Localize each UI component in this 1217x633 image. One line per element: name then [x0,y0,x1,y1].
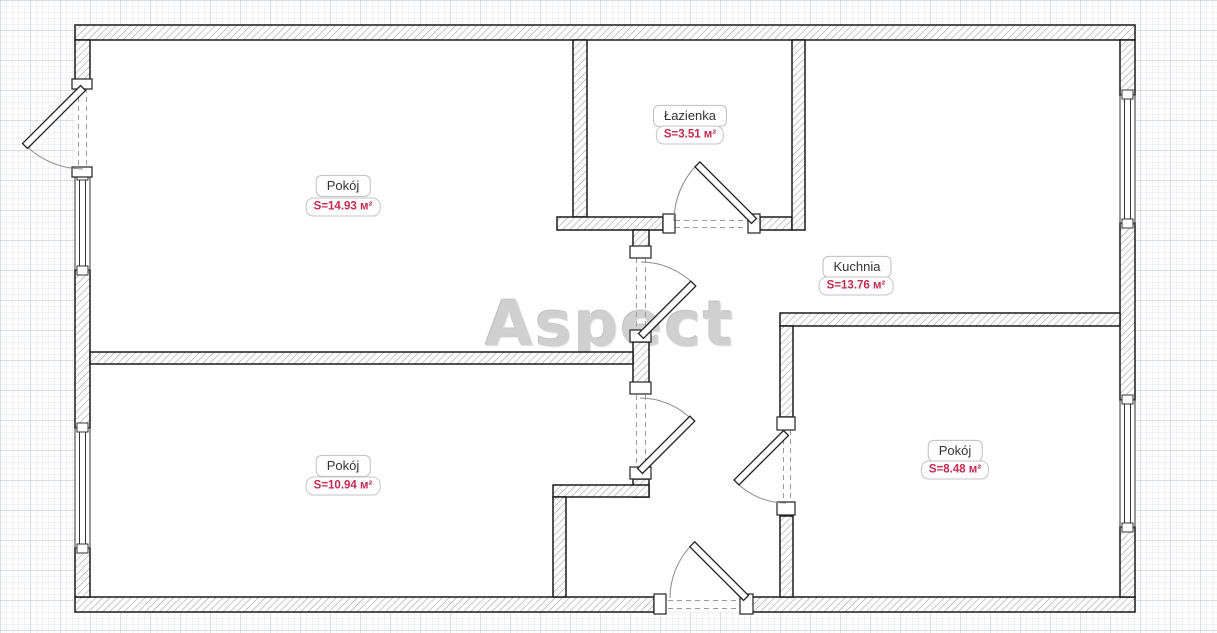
door-arc [670,544,692,598]
window [1120,395,1135,532]
wall-bathroom-right [792,40,805,230]
window [1120,90,1135,228]
wall-step-horizontal [553,485,649,497]
door-opening [784,430,791,503]
wall-step-vertical [553,497,566,597]
door-room-right [734,431,788,503]
door-bathroom [674,162,756,224]
door-opening [675,221,748,228]
wall-hall-upper [633,230,649,247]
room-area-pokoj-2: S=10.94 м² [306,477,381,496]
door-entrance-bottom [670,542,748,601]
door-opening [79,88,87,168]
wall-exterior-top [75,25,1135,40]
door-leaf [695,162,757,224]
door-leaf [639,281,696,338]
door-opening [637,258,646,330]
door-arc [674,164,697,221]
wall-room4-top [780,313,1120,326]
door-openings [79,88,791,609]
room-area-pokoj-3: S=8.48 м² [921,461,989,480]
wall-exterior-right-1 [1120,40,1135,95]
room-area-lazienka: S=3.51 м² [656,126,724,145]
door-hall-upper [639,262,696,338]
wall-exterior-bottom-right [752,597,1135,612]
wall-hall-middle [633,342,649,383]
door-leaf [690,542,749,601]
wall-exterior-right-2 [1120,223,1135,400]
door-jamb [630,246,651,258]
room-label-kuchnia: Kuchnia [823,256,892,278]
door-opening [637,395,646,468]
door-entry-left [23,86,86,169]
room-label-lazienka: Łazienka [653,105,727,127]
window [75,423,90,553]
wall-bathroom-bottom-right [760,217,792,230]
door-arc [737,483,787,504]
doors [23,86,789,601]
door-hall-lower [638,398,695,473]
wall-room4-left-upper [780,326,793,417]
door-leaf [23,86,86,149]
wall-exterior-right-3 [1120,527,1135,597]
wall-bathroom-bottom-left [557,217,663,230]
door-jamb [777,502,795,515]
window [75,171,90,275]
door-leaf [734,431,788,485]
wall-bathroom-left [573,40,587,217]
room-area-pokoj-1: S=14.93 м² [306,198,381,217]
room-label-pokoj-1: Pokój [316,175,371,197]
door-jambs [72,79,795,614]
wall-exterior-left-3 [75,548,90,597]
wall-room4-left-lower [780,516,793,597]
wall-exterior-bottom-left [75,597,654,612]
door-jamb [663,214,675,233]
door-arc [26,145,83,169]
door-opening [668,601,740,609]
room-label-pokoj-2: Pokój [316,455,371,477]
wall-room-divider [90,352,633,364]
floorplan-drawing [0,0,1217,633]
door-arc [640,398,692,419]
door-leaf [638,416,695,473]
room-label-pokoj-3: Pokój [928,440,983,462]
door-jamb [630,382,651,394]
door-jamb [654,594,666,614]
room-area-kuchnia: S=13.76 м² [819,277,894,296]
door-jamb [777,417,795,430]
floorplan-page: { "watermark": "Aspect", "rooms": [ {"na… [0,0,1217,633]
wall-exterior-left-2 [75,270,90,428]
walls [75,25,1135,612]
door-arc [641,262,693,284]
